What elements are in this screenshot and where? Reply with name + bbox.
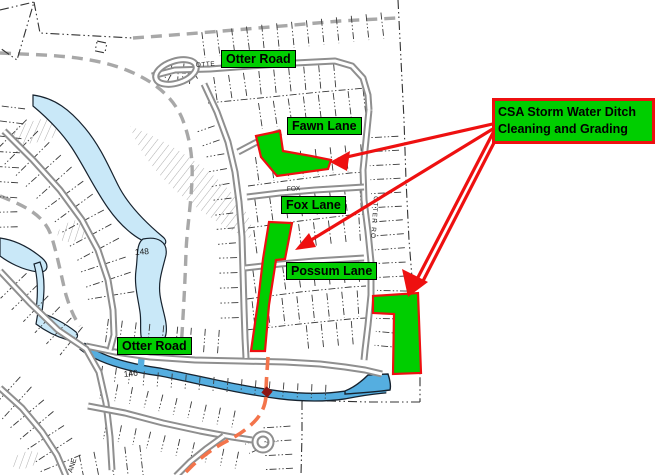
ditch-area-fox-possum-strip: [251, 222, 292, 351]
road-label-otter-road-bottom: Otter Road: [117, 337, 192, 355]
ditch-area-fawn-lane: [256, 131, 331, 176]
road-label-possum-lane: Possum Lane: [286, 262, 377, 280]
callout-line-2: Cleaning and Grading: [498, 121, 649, 138]
water-layer: [0, 95, 390, 397]
ditch-area-otter-road-east: [373, 293, 421, 374]
street-name-fox: FOX: [287, 185, 301, 193]
callout-arrow-line-east-b: [423, 135, 498, 281]
callout-line-1: CSA Storm Water Ditch: [498, 104, 649, 121]
pond-number-label: 148: [134, 246, 149, 257]
ditch-highlight-layer: [251, 131, 421, 374]
creek-number-label: 146: [123, 368, 138, 379]
plat-map-canvas: OTTE FOX OTTER RO ANE 148 146 O: [0, 0, 656, 475]
plat-map: OTTE FOX OTTER RO ANE 148 146: [0, 0, 656, 475]
street-name-otter-top: OTTE: [196, 61, 216, 69]
callout-csa-storm-water: CSA Storm Water Ditch Cleaning and Gradi…: [492, 98, 655, 144]
road-label-fox-lane: Fox Lane: [281, 196, 346, 214]
arrowhead-strip: [295, 233, 316, 250]
parcel-lines-layer: [0, 13, 407, 475]
road-label-fawn-lane: Fawn Lane: [287, 117, 362, 135]
road-label-otter-road-top: Otter Road: [221, 50, 296, 68]
